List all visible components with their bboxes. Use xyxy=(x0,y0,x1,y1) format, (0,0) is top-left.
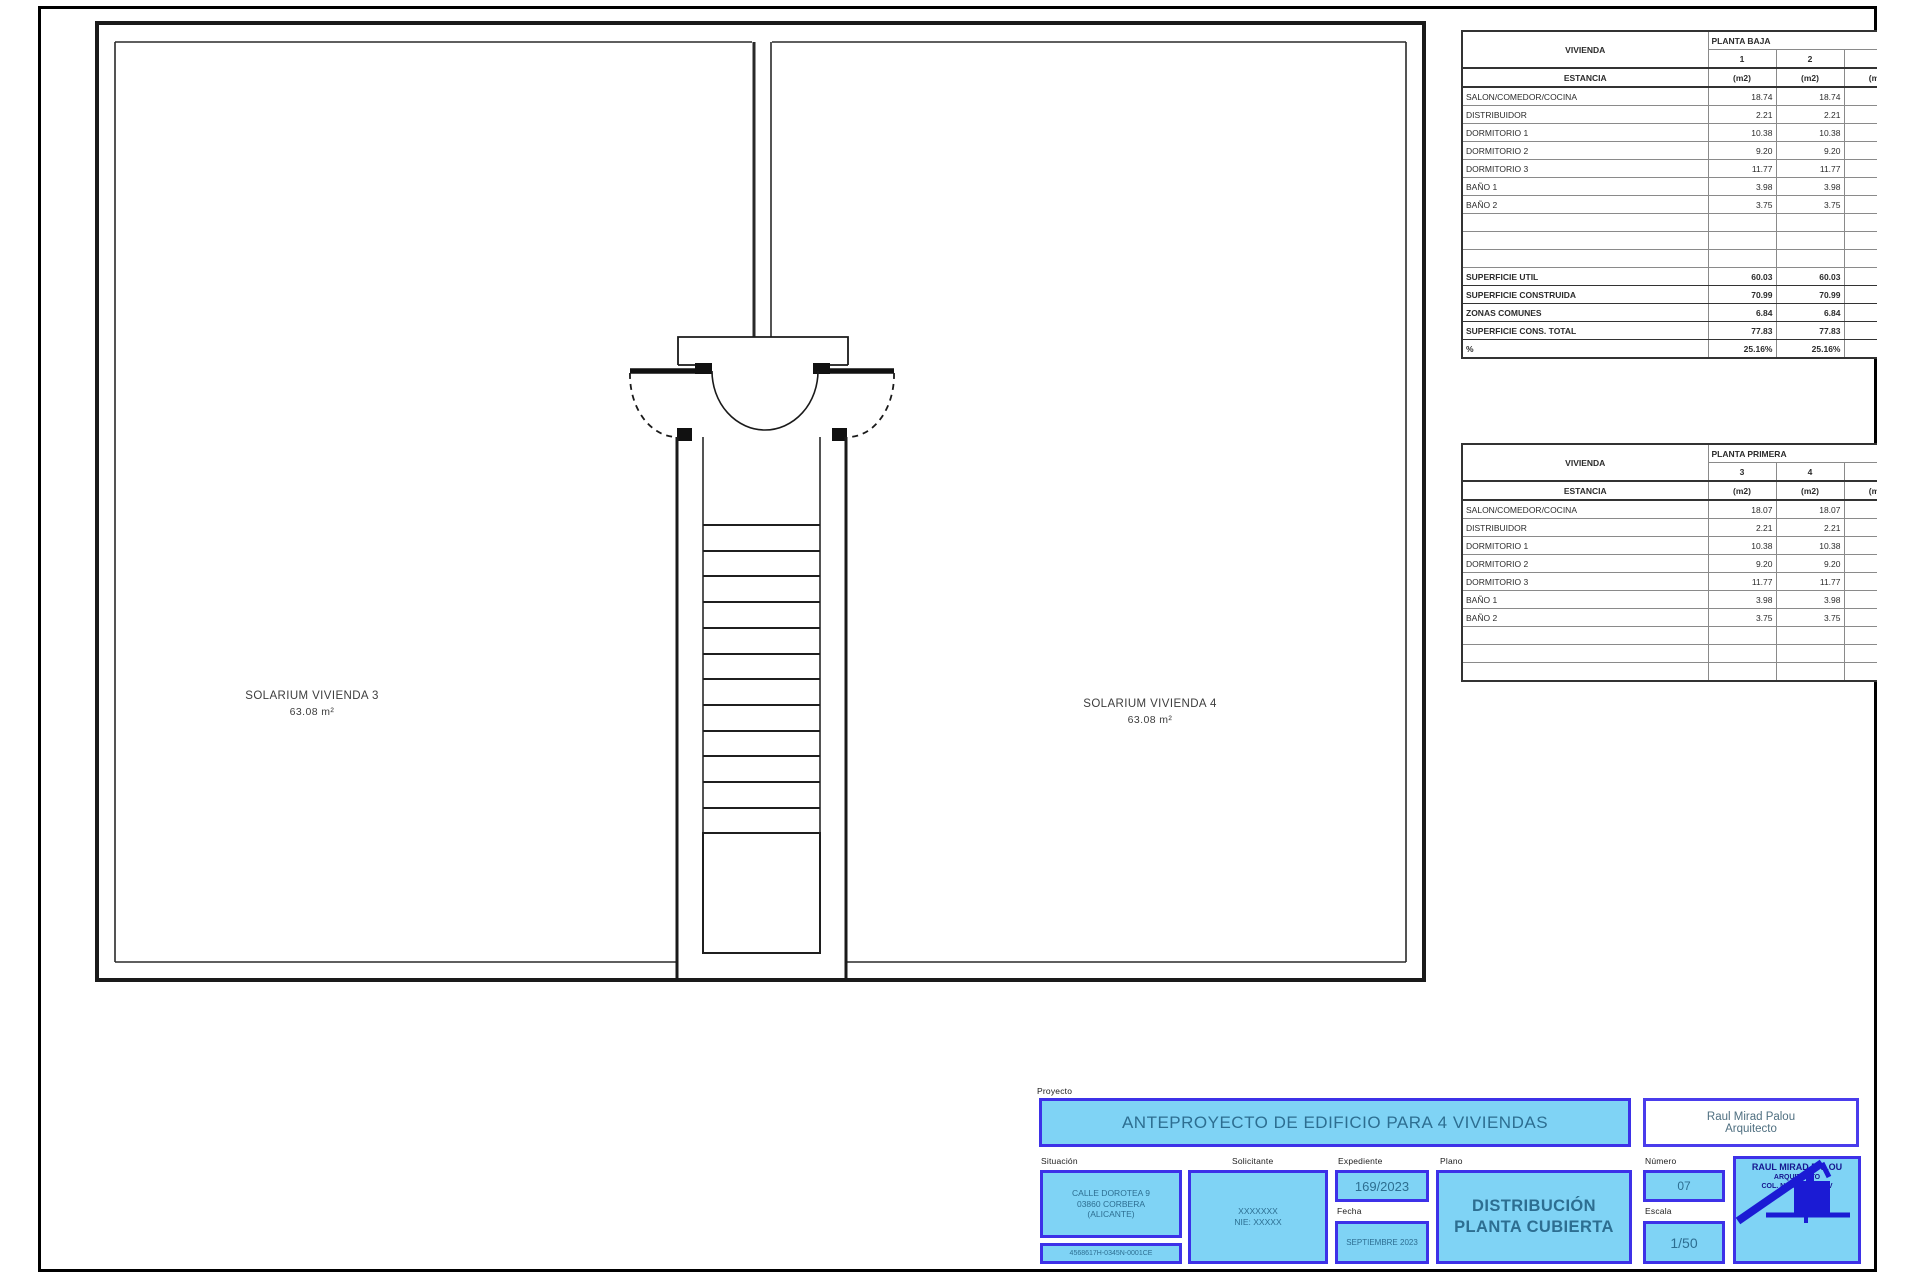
proyecto-label: Proyecto xyxy=(1037,1086,1072,1096)
table-row: DORMITORIO 110.3810.38 xyxy=(1462,537,1877,555)
situacion-line: CALLE DOROTEA 9 xyxy=(1072,1188,1150,1199)
architect-role: Arquitecto xyxy=(1725,1123,1777,1135)
stair-head-enclosure xyxy=(678,337,848,365)
plano-line2: PLANTA CUBIERTA xyxy=(1454,1217,1614,1238)
room-area: 63.08 m² xyxy=(1083,714,1217,726)
areas-table-planta-baja: VIVIENDA PLANTA BAJA 1 2 ESTANCIA (m2) (… xyxy=(1461,30,1877,375)
plano-line1: DISTRIBUCIÓN xyxy=(1472,1196,1596,1217)
curved-landing-edge xyxy=(712,371,818,430)
numero-box: 07 xyxy=(1643,1170,1725,1202)
table-row xyxy=(1462,663,1877,682)
table-header-row: VIVIENDA PLANTA BAJA xyxy=(1462,31,1877,50)
ref-catastral-box: 4568617H-0345N-0001CE xyxy=(1040,1243,1182,1264)
plano-label: Plano xyxy=(1440,1156,1463,1166)
table-row: BAÑO 13.983.98 xyxy=(1462,178,1877,196)
situacion-line: (ALICANTE) xyxy=(1087,1209,1134,1220)
room-label-left: SOLARIUM VIVIENDA 3 63.08 m² xyxy=(245,690,379,718)
project-title: ANTEPROYECTO DE EDIFICIO PARA 4 VIVIENDA… xyxy=(1122,1113,1548,1133)
numero-value: 07 xyxy=(1677,1179,1690,1193)
table-row: DISTRIBUIDOR2.212.21 xyxy=(1462,106,1877,124)
table-summary-row: SUPERFICIE CONSTRUIDA70.9970.99 xyxy=(1462,286,1877,304)
drawing-sheet: SOLARIUM VIVIENDA 3 63.08 m² SOLARIUM VI… xyxy=(0,0,1920,1280)
expediente-box: 169/2023 xyxy=(1335,1170,1429,1202)
stair-treads xyxy=(703,525,820,808)
table-row xyxy=(1462,232,1877,250)
architect-name: Raul Mirad Palou xyxy=(1707,1111,1795,1123)
fecha-box: SEPTIEMBRE 2023 xyxy=(1335,1221,1429,1264)
room-name: SOLARIUM VIVIENDA 4 xyxy=(1083,698,1217,710)
inner-wall xyxy=(115,42,1406,962)
table-row: DORMITORIO 311.7711.77 xyxy=(1462,573,1877,591)
signature-icon xyxy=(1736,1159,1854,1225)
situacion-line: 03860 CORBERA xyxy=(1077,1199,1145,1210)
project-title-box: ANTEPROYECTO DE EDIFICIO PARA 4 VIVIENDA… xyxy=(1039,1098,1631,1147)
table-row xyxy=(1462,645,1877,663)
table-summary-row: SUPERFICIE UTIL60.0360.03 xyxy=(1462,268,1877,286)
table-summary-row: ZONAS COMUNES6.846.84 xyxy=(1462,304,1877,322)
expediente-value: 169/2023 xyxy=(1355,1179,1409,1194)
room-label-right: SOLARIUM VIVIENDA 4 63.08 m² xyxy=(1083,698,1217,726)
table-header-row: VIVIENDA PLANTA PRIMERA xyxy=(1462,444,1877,463)
table-row: BAÑO 23.753.75 xyxy=(1462,609,1877,627)
plano-box: DISTRIBUCIÓN PLANTA CUBIERTA xyxy=(1436,1170,1632,1264)
numero-label: Número xyxy=(1645,1156,1676,1166)
door-swing-arc-left xyxy=(630,373,677,437)
table-header-row: ESTANCIA (m2) (m2) (m2) xyxy=(1462,481,1877,500)
solicitante-label: Solicitante xyxy=(1232,1156,1273,1166)
door-swing-arc-right xyxy=(848,373,894,437)
areas-table: VIVIENDA PLANTA BAJA 1 2 ESTANCIA (m2) (… xyxy=(1461,30,1877,359)
fecha-value: SEPTIEMBRE 2023 xyxy=(1346,1238,1418,1247)
door-jamb-left xyxy=(677,428,692,441)
room-area: 63.08 m² xyxy=(245,706,379,718)
ref-catastral: 4568617H-0345N-0001CE xyxy=(1070,1250,1153,1257)
outer-wall xyxy=(97,23,1424,980)
door-leaf-left xyxy=(695,363,712,374)
solicitante-nie: NIE: XXXXX xyxy=(1234,1217,1281,1228)
room-name: SOLARIUM VIVIENDA 3 xyxy=(245,690,379,702)
table-row xyxy=(1462,250,1877,268)
table-row: BAÑO 23.753.75 xyxy=(1462,196,1877,214)
table-row: SALON/COMEDOR/COCINA18.7418.74 xyxy=(1462,87,1877,106)
escala-box: 1/50 xyxy=(1643,1221,1725,1264)
solicitante-name: XXXXXXX xyxy=(1238,1206,1278,1217)
door-leaf-right xyxy=(813,363,830,374)
areas-table-planta-primera: VIVIENDA PLANTA PRIMERA 3 4 ESTANCIA (m2… xyxy=(1461,443,1877,693)
table-row: DISTRIBUIDOR2.212.21 xyxy=(1462,519,1877,537)
fecha-label: Fecha xyxy=(1337,1206,1362,1216)
table-row: DORMITORIO 29.209.20 xyxy=(1462,555,1877,573)
table-summary-row: SUPERFICIE CONS. TOTAL77.8377.83 xyxy=(1462,322,1877,340)
table-summary-row: %25.16%25.16% xyxy=(1462,340,1877,359)
table-header-row: ESTANCIA (m2) (m2) (m2) xyxy=(1462,68,1877,87)
stair-shaft-inner-walls xyxy=(703,437,820,953)
escala-value: 1/50 xyxy=(1670,1235,1697,1251)
architect-box: Raul Mirad Palou Arquitecto xyxy=(1643,1098,1859,1147)
stair-lower-landing xyxy=(703,833,820,953)
table-row: BAÑO 13.983.98 xyxy=(1462,591,1877,609)
situacion-box: CALLE DOROTEA 9 03860 CORBERA (ALICANTE) xyxy=(1040,1170,1182,1238)
table-row: DORMITORIO 29.209.20 xyxy=(1462,142,1877,160)
areas-table: VIVIENDA PLANTA PRIMERA 3 4 ESTANCIA (m2… xyxy=(1461,443,1877,682)
architect-stamp-box: RAUL MIRAD PALOU ARQUITECTO COL. Nº 1234… xyxy=(1733,1156,1861,1264)
solicitante-box: XXXXXXX NIE: XXXXX xyxy=(1188,1170,1328,1264)
situacion-label: Situación xyxy=(1041,1156,1078,1166)
table-row xyxy=(1462,627,1877,645)
escala-label: Escala xyxy=(1645,1206,1672,1216)
table-row xyxy=(1462,214,1877,232)
table-row: DORMITORIO 311.7711.77 xyxy=(1462,160,1877,178)
expediente-label: Expediente xyxy=(1338,1156,1383,1166)
table-row: SALON/COMEDOR/COCINA18.0718.07 xyxy=(1462,500,1877,519)
table-row: DORMITORIO 110.3810.38 xyxy=(1462,124,1877,142)
